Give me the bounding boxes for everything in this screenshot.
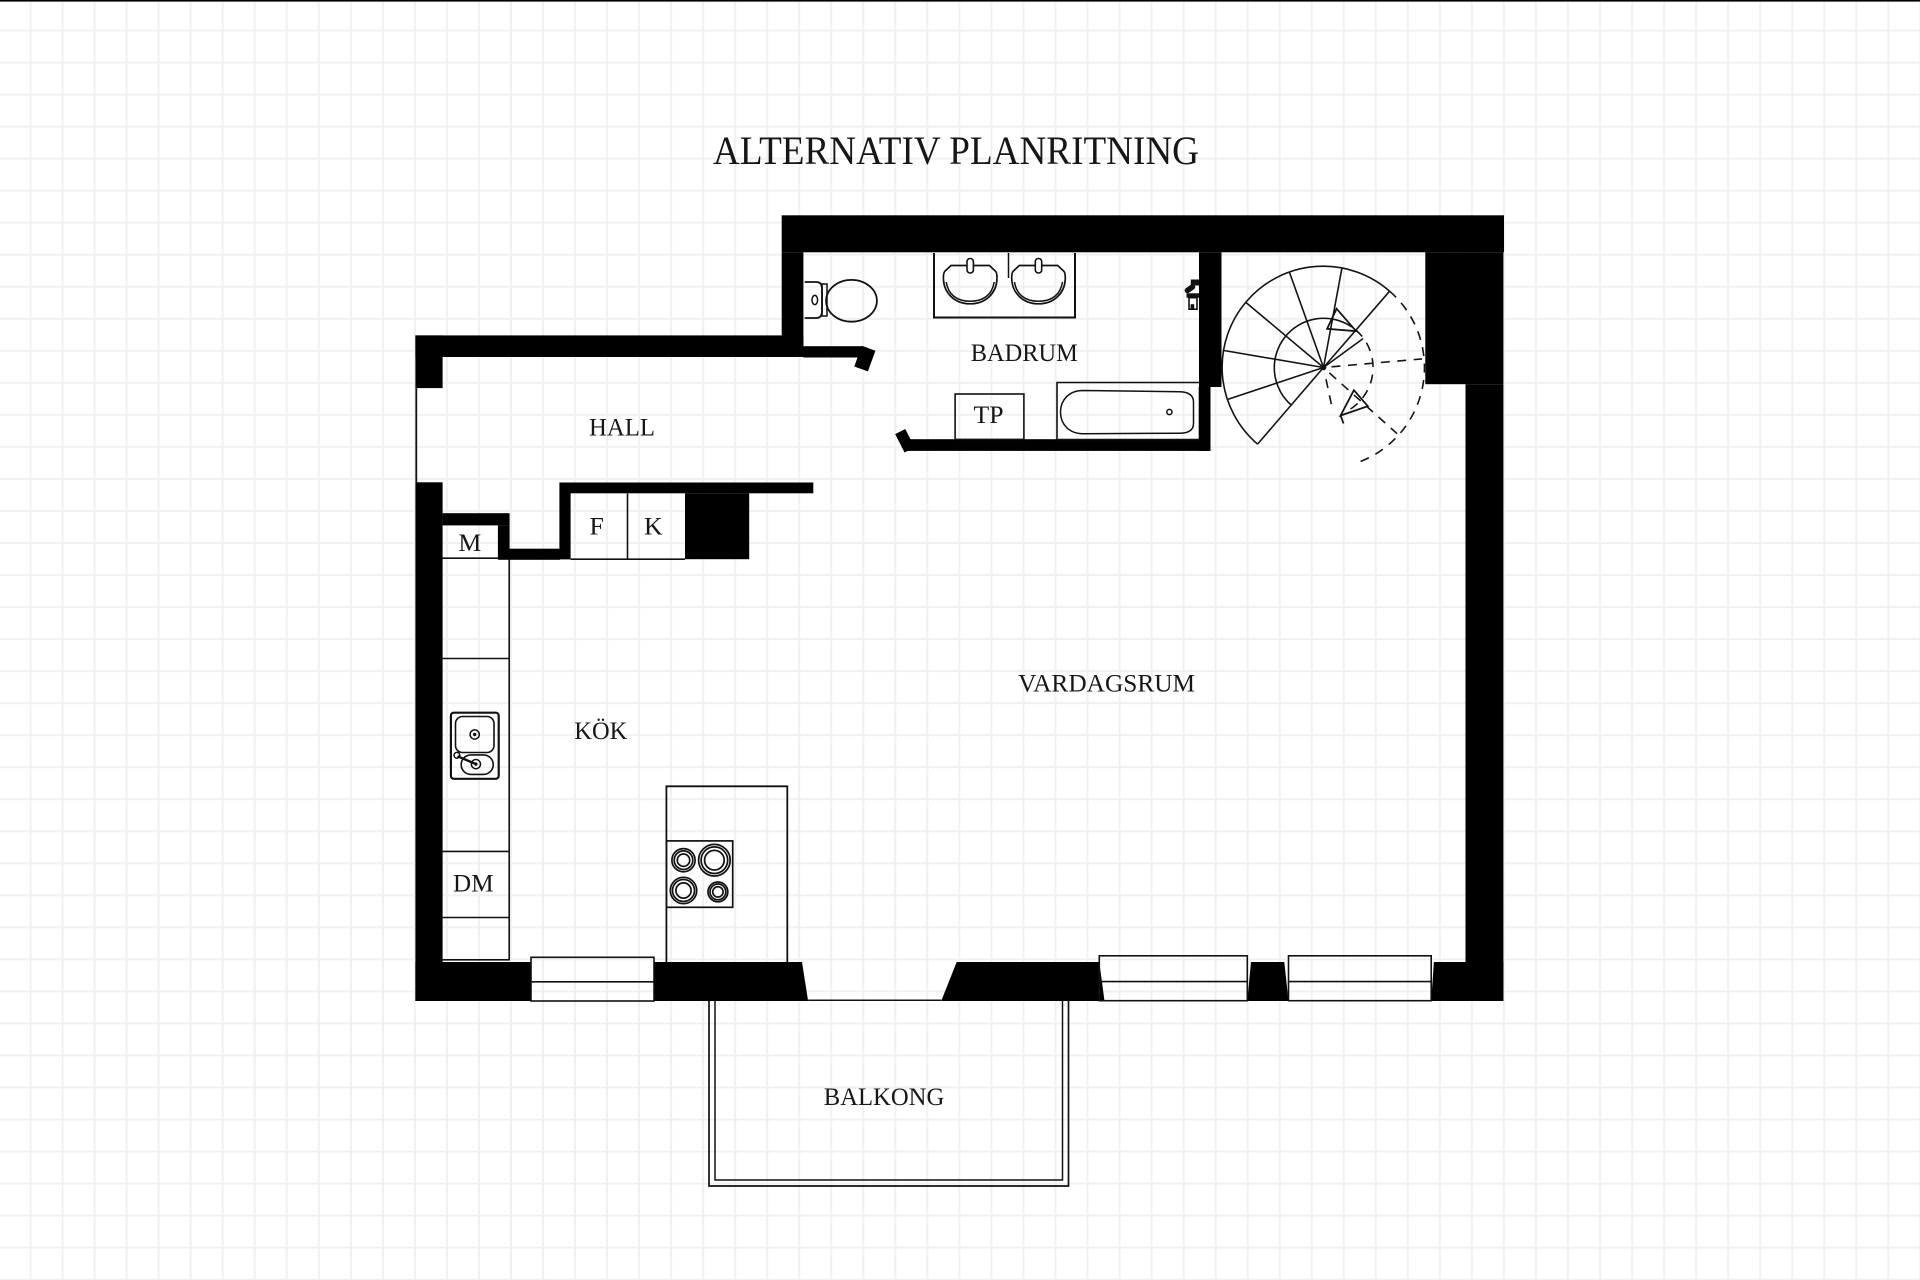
svg-text:K: K [644,512,663,541]
svg-text:VARDAGSRUM: VARDAGSRUM [1018,669,1195,698]
svg-text:F: F [590,512,604,541]
svg-text:M: M [458,528,481,557]
svg-text:BADRUM: BADRUM [971,338,1078,367]
svg-text:ALTERNATIV PLANRITNING: ALTERNATIV PLANRITNING [713,128,1199,173]
svg-text:KÖK: KÖK [574,716,627,745]
svg-text:HALL: HALL [589,413,655,442]
svg-text:BALKONG: BALKONG [824,1082,945,1111]
svg-text:DM: DM [453,868,494,897]
svg-text:TP: TP [974,400,1004,429]
